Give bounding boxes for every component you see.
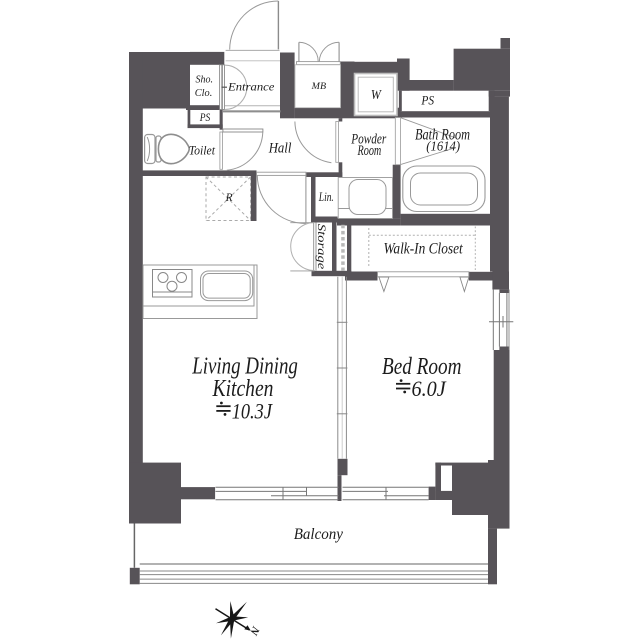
- svg-text:R: R: [225, 190, 233, 204]
- svg-text:(1614): (1614): [426, 139, 460, 154]
- svg-text:PS: PS: [421, 92, 435, 107]
- svg-text:6.0J: 6.0J: [412, 376, 447, 401]
- svg-text:Sho.: Sho.: [196, 74, 214, 86]
- svg-text:10.3J: 10.3J: [232, 398, 273, 423]
- svg-text:Toilet: Toilet: [189, 143, 216, 157]
- svg-text:MB: MB: [311, 81, 326, 92]
- svg-text:PS: PS: [199, 112, 211, 124]
- svg-text:Clo.: Clo.: [195, 87, 213, 99]
- svg-text:Walk-In Closet: Walk-In Closet: [384, 241, 464, 258]
- svg-text:Room: Room: [357, 143, 382, 159]
- svg-text:W: W: [371, 87, 383, 102]
- svg-text:Entrance: Entrance: [227, 79, 275, 93]
- svg-text:Lin.: Lin.: [318, 189, 334, 204]
- svg-text:Storage: Storage: [315, 224, 329, 270]
- svg-text:Hall: Hall: [268, 140, 292, 156]
- svg-text:Balcony: Balcony: [294, 526, 343, 543]
